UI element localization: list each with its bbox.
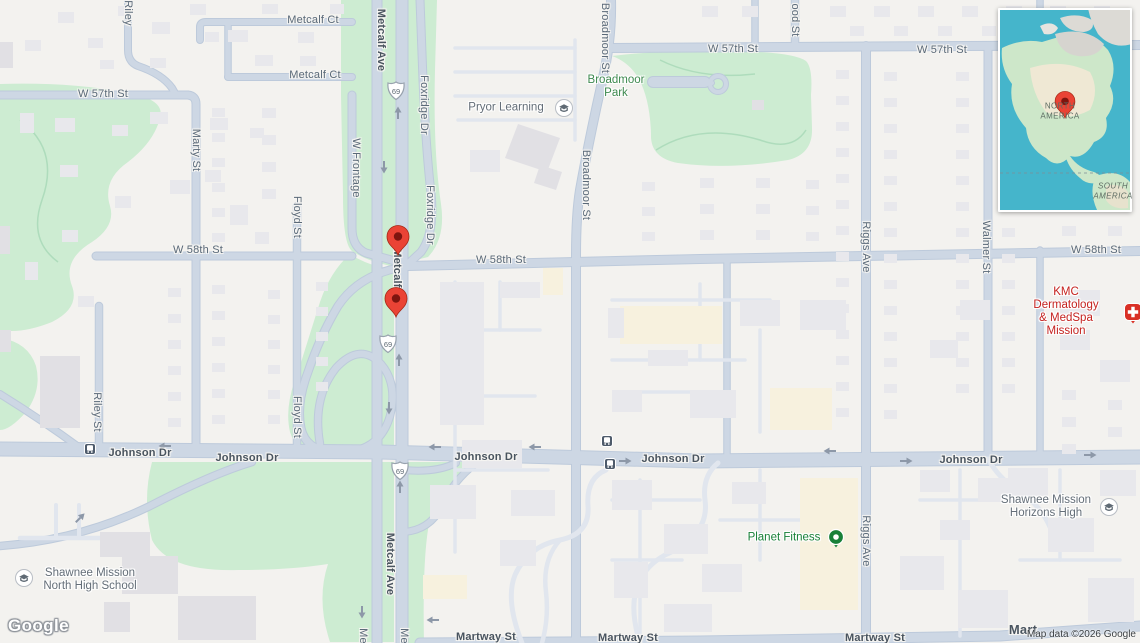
street-label: Riley St bbox=[91, 392, 103, 432]
street-label: W 57th St bbox=[917, 44, 967, 56]
street-label: Metcalf bbox=[391, 248, 403, 287]
google-logo[interactable]: Google bbox=[8, 616, 69, 636]
street-label: Johnson Dr bbox=[108, 447, 171, 459]
street-label: Johnson Dr bbox=[641, 453, 704, 465]
street-label: Foxridge Dr bbox=[418, 75, 430, 135]
street-label: Floyd St bbox=[291, 196, 303, 238]
map-attribution: Map data ©2026 Google bbox=[1027, 629, 1136, 640]
street-label: W 58th St bbox=[476, 254, 526, 266]
inset-overview-map[interactable]: NORTHAMERICASOUTHAMERICA bbox=[998, 8, 1132, 212]
street-label: Broadmoor St bbox=[599, 3, 611, 73]
poi-label-planet-fitness[interactable]: Planet Fitness bbox=[748, 532, 821, 545]
inset-region-label: NORTH bbox=[1045, 102, 1075, 111]
poi-label-shawnee-mission[interactable]: Shawnee MissionHorizons High bbox=[1001, 494, 1091, 520]
street-label: W 57th St bbox=[78, 88, 128, 100]
street-label: Foxridge Dr bbox=[424, 185, 436, 245]
poi-label-broadmoor[interactable]: BroadmoorPark bbox=[588, 74, 645, 100]
street-label: W 58th St bbox=[173, 244, 223, 256]
street-label: W Frontage bbox=[350, 138, 362, 197]
street-label: Me bbox=[398, 628, 410, 643]
street-label: ood St bbox=[789, 3, 801, 36]
street-label: Walmer St bbox=[980, 221, 992, 274]
street-label: Metcalf Ave bbox=[375, 9, 387, 72]
street-label: W 57th St bbox=[708, 43, 758, 55]
map-viewport[interactable]: Metcalf CtMetcalf CtW 57th StW 57th StW … bbox=[0, 0, 1140, 643]
street-label: Broadmoor St bbox=[580, 150, 592, 220]
street-label: Metcalf Ct bbox=[289, 69, 341, 81]
poi-label-shawnee-mission[interactable]: Shawnee MissionNorth High School bbox=[43, 567, 136, 593]
inset-region-label: AMERICA bbox=[1093, 192, 1132, 201]
street-label: W 58th St bbox=[1071, 244, 1121, 256]
street-label: Martway St bbox=[845, 632, 905, 643]
street-label: Johnson Dr bbox=[454, 451, 517, 463]
street-label: Johnson Dr bbox=[215, 452, 278, 464]
inset-region-label: SOUTH bbox=[1098, 182, 1128, 191]
street-label: Riggs Ave bbox=[860, 515, 872, 566]
street-label: Johnson Dr bbox=[939, 454, 1002, 466]
street-label: Floyd St bbox=[291, 396, 303, 438]
inset-region-label: AMERICA bbox=[1040, 112, 1079, 121]
street-label: Riley bbox=[122, 0, 134, 25]
street-label: Martway St bbox=[456, 631, 516, 643]
street-label: Riggs Ave bbox=[860, 221, 872, 272]
street-label: Martway St bbox=[598, 632, 658, 643]
map-labels-layer: Metcalf CtMetcalf CtW 57th StW 57th StW … bbox=[0, 0, 1140, 643]
street-label: Me bbox=[357, 628, 369, 643]
poi-label-pryor-learning[interactable]: Pryor Learning bbox=[468, 102, 543, 115]
street-label: Marty St bbox=[190, 129, 202, 172]
street-label: Metcalf Ave bbox=[384, 533, 396, 596]
street-label: Metcalf Ct bbox=[287, 14, 339, 26]
poi-label-kmc-dermatology[interactable]: KMC Dermatology& MedSpa Mission bbox=[1029, 286, 1103, 338]
